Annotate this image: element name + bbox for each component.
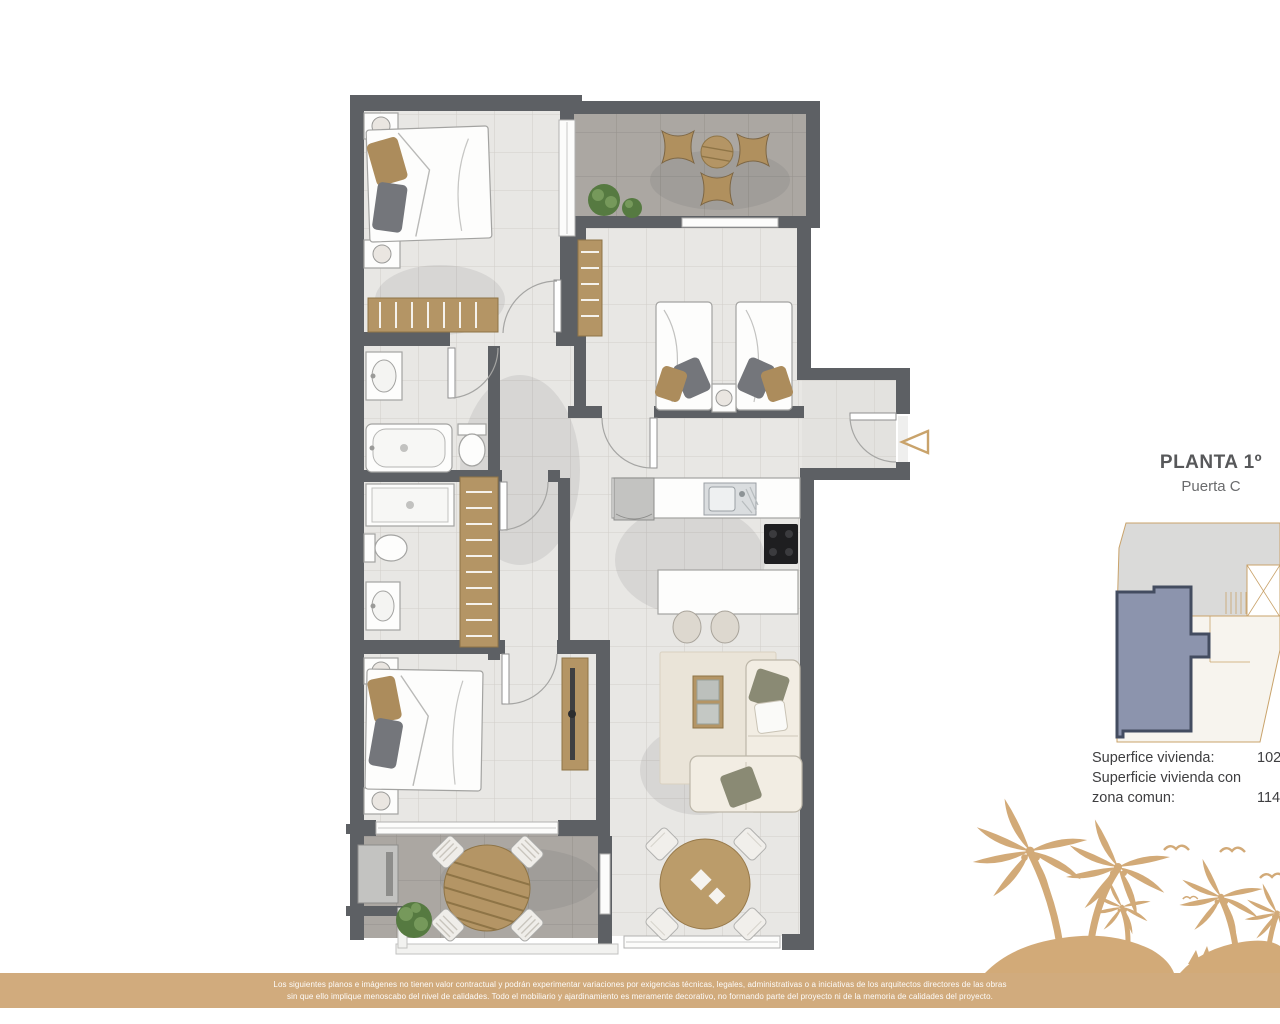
bedroom-1 [364,113,498,332]
kitchen-sink [704,483,758,515]
tv-console [562,658,588,770]
cooktop [764,524,798,564]
bird-icon [1220,848,1245,852]
page-title: PLANTA 1º [1146,452,1276,474]
brochure-page: PLANTA 1º Puerta C Superfice vivienda: 1… [0,0,1280,1024]
plant [396,902,432,938]
coffee-table [693,676,723,728]
hall-closet [460,477,498,647]
key-plan [1117,523,1280,742]
surface-row: Superficie vivienda con [1092,768,1280,788]
surface-value: 102. [1257,748,1280,768]
toilet [458,424,486,466]
surface-info: Superfice vivienda: 102. Superficie vivi… [1092,748,1280,808]
bird-icon [1164,846,1189,850]
double-bed [365,669,483,791]
palm-trees-graphic [973,796,1280,973]
surface-row: zona comun: 114. [1092,788,1280,808]
island [658,570,798,614]
stool [711,611,739,643]
page-subtitle: Puerta C [1146,478,1276,495]
bird-icon [1260,874,1280,878]
fridge [614,478,654,520]
disclaimer-bar: Los siguientes planos e imágenes no tien… [0,973,1280,1008]
coffee-table [701,136,733,168]
dining-area [644,826,767,941]
surface-label: Superficie vivienda con [1092,770,1241,786]
bird-icon [1183,896,1198,899]
surface-label: zona comun: [1092,790,1175,806]
double-bed [365,126,492,242]
toilet [364,534,407,562]
surface-value: 114. [1257,788,1280,808]
surface-label: Superfice vivienda: [1092,750,1215,766]
wardrobe [578,240,602,336]
disclaimer-line: Los siguientes planos e imágenes no tien… [0,979,1280,991]
stool [673,611,701,643]
balcony-railing [396,944,618,954]
apartment-floorplan [0,0,1280,1024]
surface-row: Superfice vivienda: 102. [1092,748,1280,768]
disclaimer-line: sin que ello implique menoscabo del nive… [0,991,1280,1003]
wardrobe [368,298,498,332]
